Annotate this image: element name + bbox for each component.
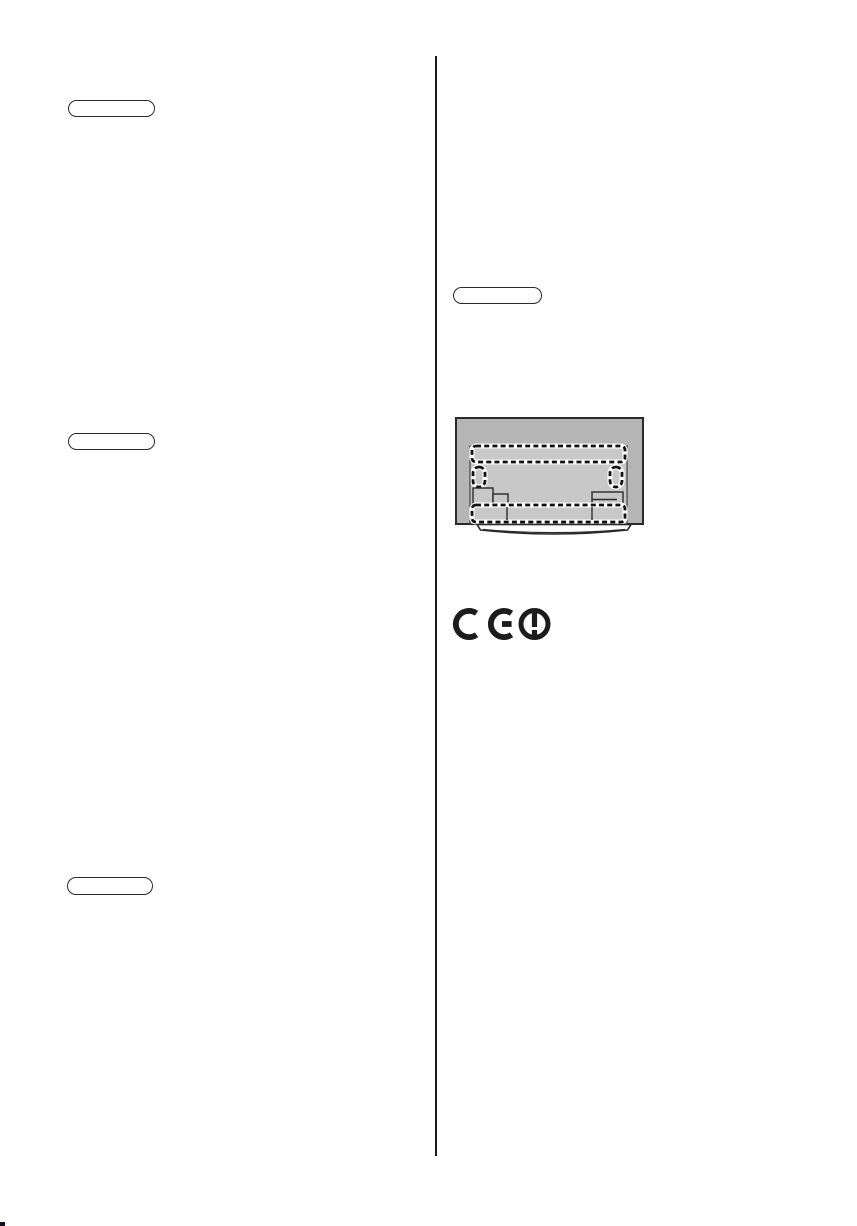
recessed-connector-panel <box>470 446 627 524</box>
ce-letter-c <box>456 611 477 637</box>
ce-letters <box>456 611 512 637</box>
print-registration-mark <box>0 1222 5 1226</box>
manual-page <box>0 0 857 1226</box>
section-heading-pill-4 <box>453 287 542 304</box>
tv-rear-panel-illustration <box>455 417 644 539</box>
pedestal-stand <box>477 525 631 535</box>
alert-class2-circle-icon <box>521 611 548 638</box>
left-column <box>0 0 435 1226</box>
section-heading-pill-3 <box>67 877 153 895</box>
section-heading-pill-2 <box>68 433 155 450</box>
section-heading-pill-1 <box>68 100 155 117</box>
ce-conformity-mark <box>453 606 553 642</box>
